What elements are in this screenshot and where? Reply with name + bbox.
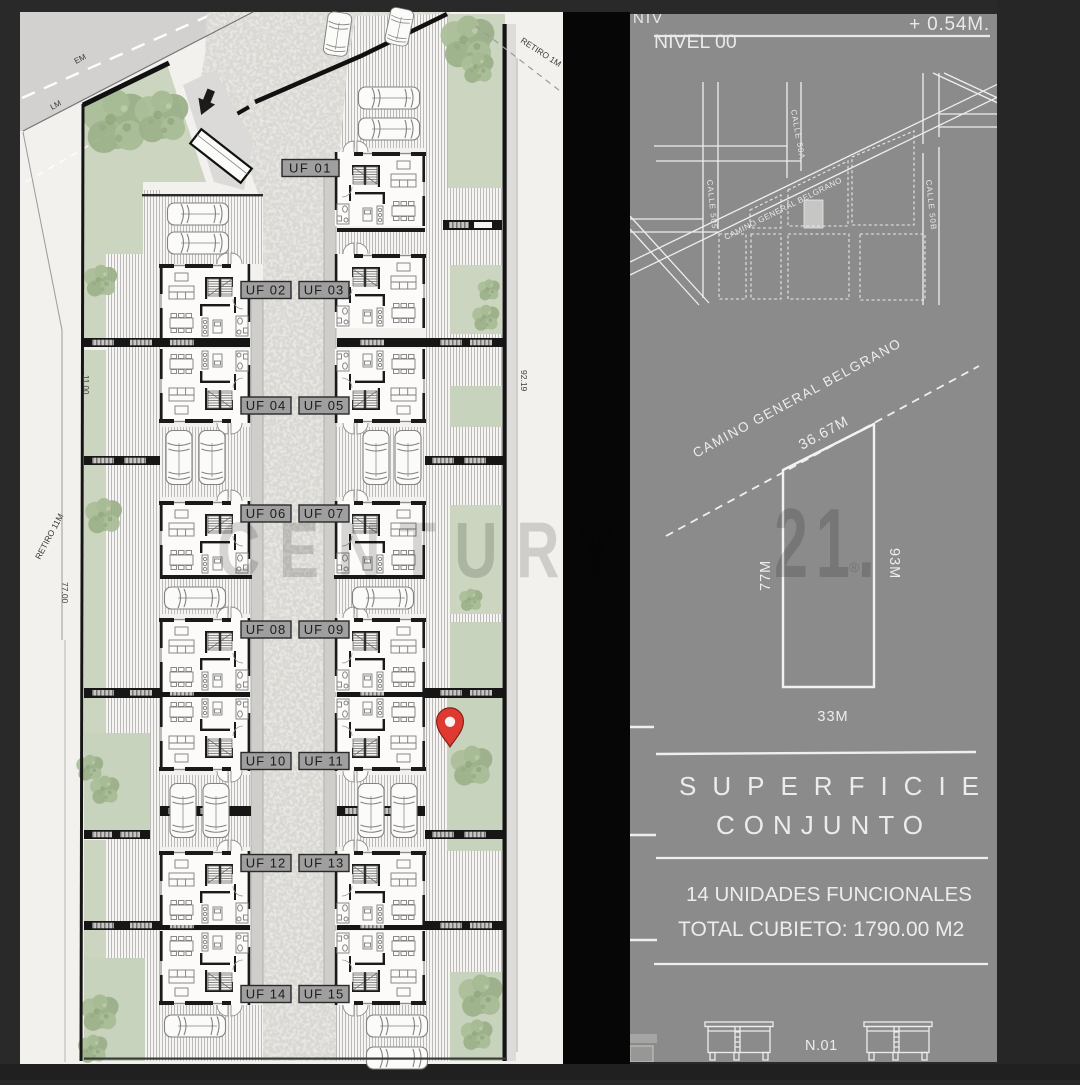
- svg-text:UF 09: UF 09: [304, 622, 344, 637]
- svg-text:UF 04: UF 04: [246, 398, 286, 413]
- svg-text:14 UNIDADES FUNCIONALES: 14 UNIDADES FUNCIONALES: [686, 883, 972, 906]
- svg-text:UF 11: UF 11: [304, 754, 343, 769]
- svg-text:CONJUNTO: CONJUNTO: [716, 810, 932, 840]
- svg-text:UF 05: UF 05: [304, 398, 344, 413]
- svg-text:®: ®: [849, 559, 860, 575]
- svg-text:21.: 21.: [774, 489, 883, 599]
- svg-text:UF 10: UF 10: [246, 754, 286, 769]
- svg-text:CENTURY: CENTURY: [217, 505, 634, 594]
- svg-text:11.00: 11.00: [81, 375, 90, 395]
- svg-text:UF 08: UF 08: [246, 622, 286, 637]
- svg-text:92.19: 92.19: [519, 370, 529, 392]
- svg-text:UF 02: UF 02: [246, 283, 286, 298]
- svg-text:UF 14: UF 14: [246, 987, 286, 1002]
- svg-text:TOTAL CUBIETO: 1790.00 M2: TOTAL CUBIETO: 1790.00 M2: [678, 918, 964, 941]
- svg-text:+ 0.54M.: + 0.54M.: [909, 14, 990, 35]
- svg-text:77M: 77M: [758, 560, 774, 591]
- svg-text:NIV: NIV: [633, 10, 664, 27]
- svg-text:SUPERFICIE: SUPERFICIE: [679, 771, 995, 801]
- svg-text:UF 13: UF 13: [304, 856, 344, 871]
- svg-text:77.00: 77.00: [60, 582, 70, 604]
- svg-text:UF 01: UF 01: [289, 161, 332, 176]
- svg-text:UF 15: UF 15: [304, 987, 344, 1002]
- svg-text:UF 03: UF 03: [304, 283, 344, 298]
- svg-text:NIVEL 00: NIVEL 00: [654, 31, 737, 53]
- svg-text:UF 12: UF 12: [246, 856, 286, 871]
- svg-text:93M: 93M: [886, 548, 902, 579]
- svg-text:33M: 33M: [817, 709, 848, 725]
- svg-text:N.01: N.01: [805, 1038, 838, 1054]
